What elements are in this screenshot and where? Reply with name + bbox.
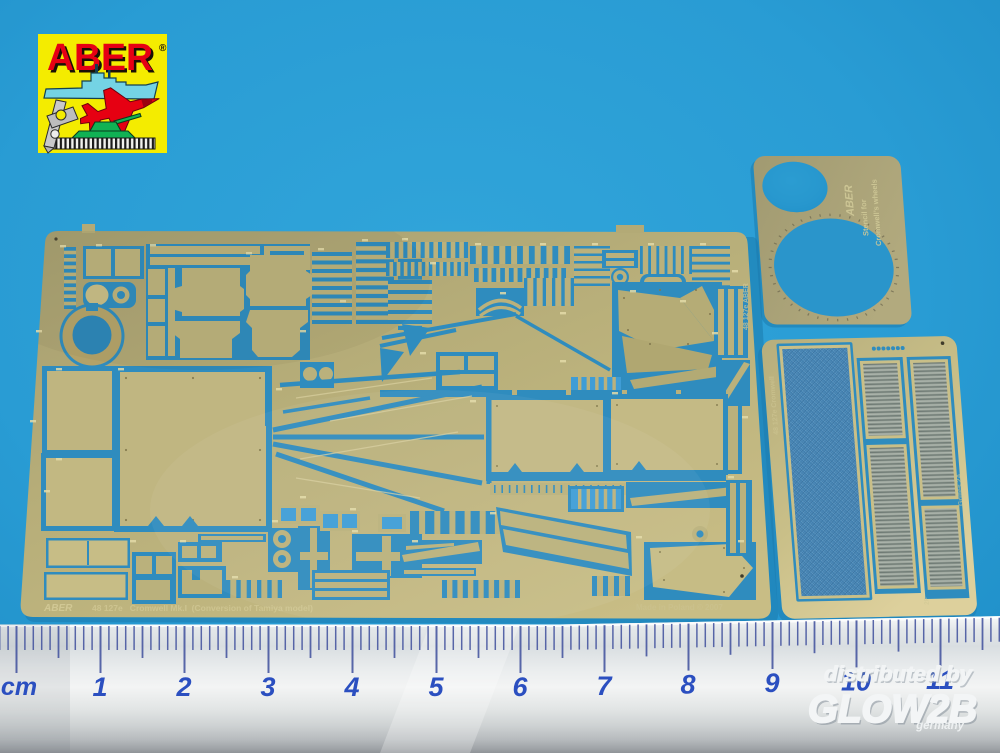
svg-text:ABER: ABER — [43, 603, 73, 614]
svg-text:germany: germany — [915, 720, 965, 732]
svg-text:3: 3 — [260, 672, 275, 702]
svg-text:Made in Poland © 2007: Made in Poland © 2007 — [636, 603, 723, 612]
svg-text:2F: 2F — [923, 597, 931, 605]
svg-text:distributed by: distributed by — [824, 662, 973, 686]
svg-text:2: 2 — [175, 672, 191, 702]
svg-text:7: 7 — [596, 671, 613, 701]
svg-text:1: 1 — [92, 672, 107, 702]
svg-text:ABER: ABER — [843, 185, 857, 217]
svg-text:6: 6 — [512, 672, 528, 702]
svg-text:48 127e ABER: 48 127e ABER — [743, 283, 750, 330]
svg-text:cm: cm — [1, 673, 37, 701]
svg-text:4: 4 — [343, 672, 359, 702]
svg-text:8: 8 — [680, 670, 695, 700]
svg-text:5: 5 — [428, 672, 444, 702]
svg-text:9: 9 — [764, 668, 779, 698]
svg-text:®: ® — [159, 43, 167, 54]
